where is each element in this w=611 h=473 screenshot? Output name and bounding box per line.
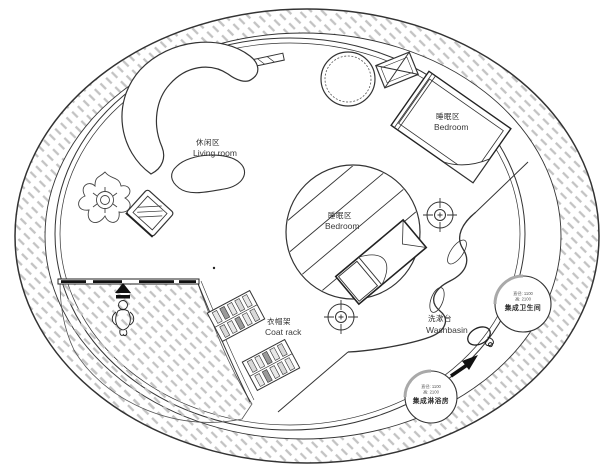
bathroom-pod-label: 集成卫生间 (504, 303, 541, 312)
living-zone-label-zh: 休闲区 (196, 137, 220, 147)
bedroom-center-label-en: Bedroom (325, 221, 360, 231)
washbasin-label-en: Washbasin (426, 325, 468, 335)
pod-dim-text: 高: 2100 (423, 389, 440, 396)
reference-dot (213, 267, 215, 269)
bathroom-pod: 直径: 1100 高: 2100 集成卫生间 (495, 276, 551, 332)
coat-rack-label-en: Coat rack (265, 327, 302, 337)
floor-plan-page: 直径: 1100 高: 2100 集成卫生间 直径: 1100 高: 2100 … (0, 0, 611, 473)
living-zone-label-en: Living room (193, 148, 237, 158)
pod-dim-text: 高: 2100 (515, 296, 532, 303)
bedroom-upper-label-zh: 睡眠区 (436, 112, 460, 121)
shower-pod: 直径: 1100 高: 2100 集成淋浴房 (405, 371, 457, 423)
coat-rack-label-zh: 衣帽架 (267, 316, 291, 326)
bedroom-upper-label-en: Bedroom (434, 122, 469, 132)
entrance-wall (58, 279, 199, 284)
round-table-icon (321, 52, 375, 106)
floor-plan-canvas: 直径: 1100 高: 2100 集成卫生间 直径: 1100 高: 2100 … (0, 0, 611, 473)
washbasin-label-zh: 洗漱台 (428, 313, 452, 323)
pod-dim-text: 直径: 1100 (513, 290, 533, 296)
pod-dim-text: 直径: 1100 (421, 383, 441, 389)
bedroom-center-label-zh: 睡眠区 (328, 211, 352, 220)
shower-pod-label: 集成淋浴房 (412, 396, 449, 405)
